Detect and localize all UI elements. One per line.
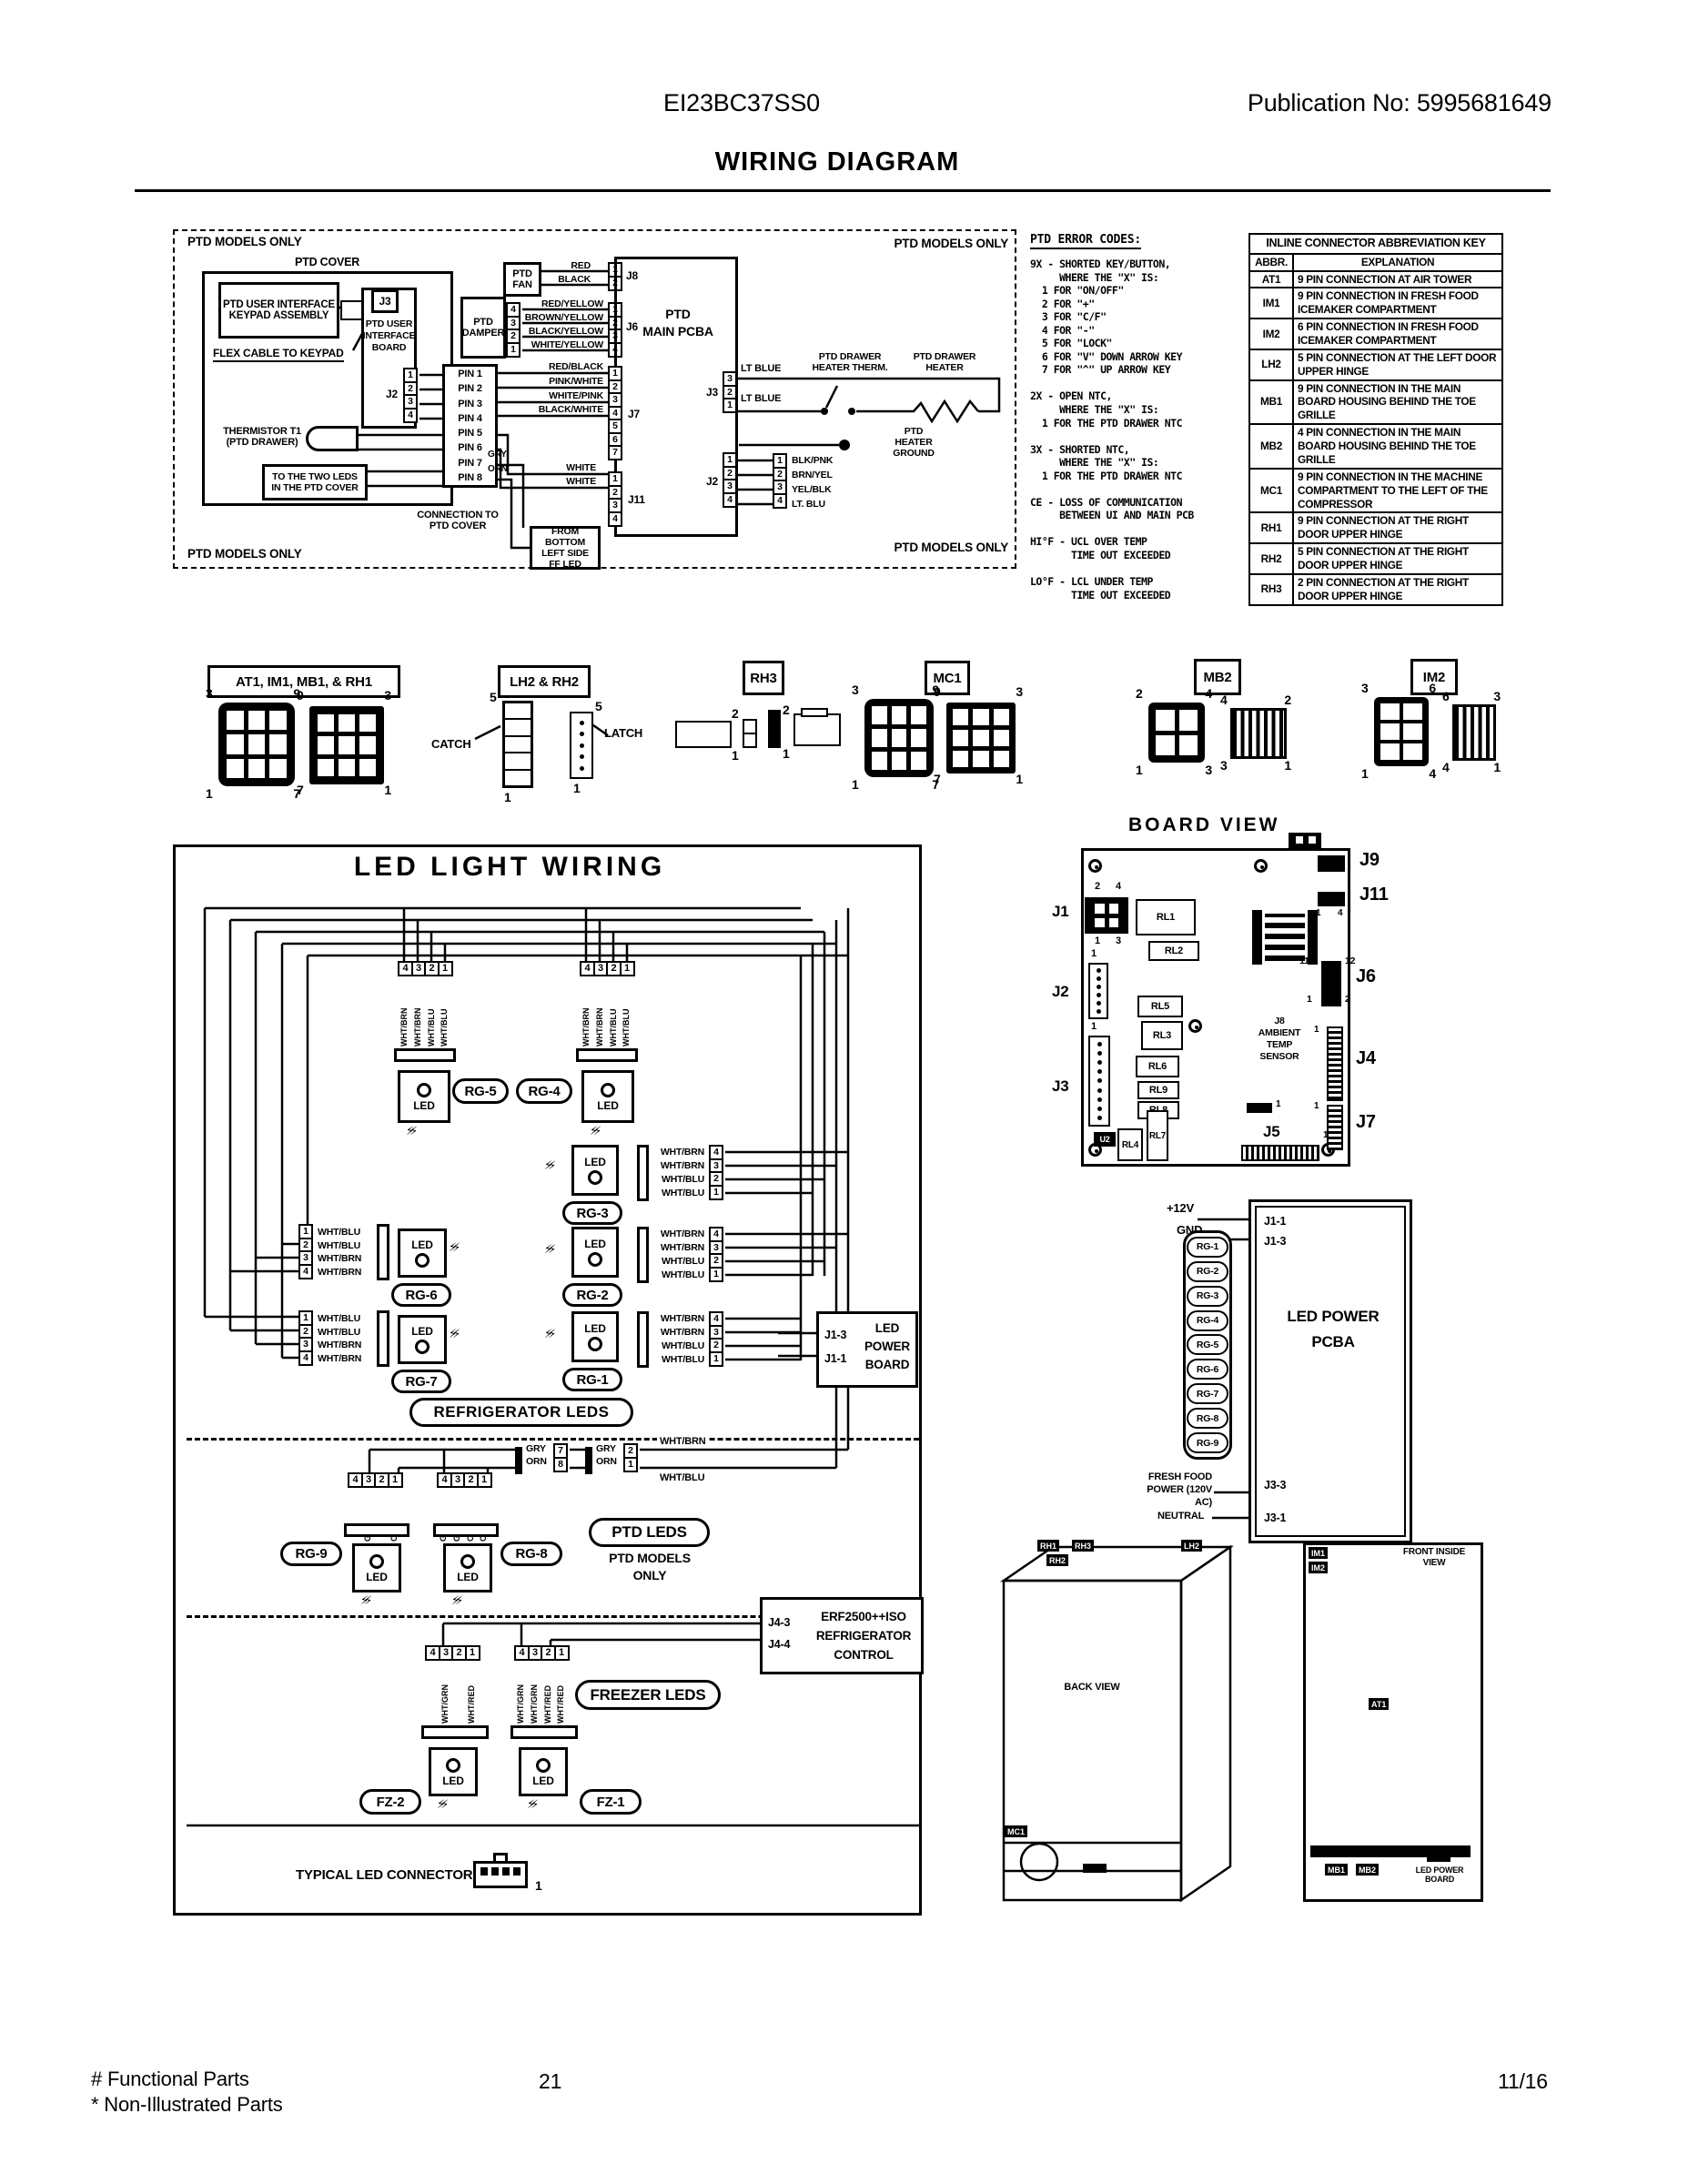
explanation-cell: 2 PIN CONNECTION AT THE RIGHT DOOR UPPER… xyxy=(1294,575,1501,604)
heater-ground-label: PTD HEATER GROUND xyxy=(890,426,937,459)
ptd-fan-box: PTD FAN xyxy=(503,262,541,297)
j2-right-pins: 1234 xyxy=(723,452,737,508)
explanation-cell: 4 PIN CONNECTION IN THE MAIN BOARD HOUSI… xyxy=(1294,425,1501,468)
rg3-led: LED xyxy=(571,1145,619,1196)
pin-cell: 4 xyxy=(723,492,737,508)
rg5-pins: 4321 xyxy=(398,961,453,976)
mount-hole-icon xyxy=(1188,1019,1202,1033)
error-codes-title: PTD ERROR CODES: xyxy=(1030,233,1141,249)
col-abbr: ABBR. xyxy=(1250,255,1294,270)
pin-row: PIN 2 xyxy=(445,381,495,396)
group5-label: MB2 xyxy=(1194,659,1241,695)
j7-pins: 1234567 xyxy=(608,366,622,460)
damper-wire: RED/YELLOW xyxy=(523,298,603,309)
abbr-cell: LH2 xyxy=(1250,350,1294,379)
rg3-label: RG-3 xyxy=(562,1201,622,1225)
pin-cell: 7 xyxy=(608,445,622,460)
fan-wire-black: BLACK xyxy=(551,274,591,285)
rg-channel: RG-9 xyxy=(1187,1432,1228,1453)
rg-channel: RG-1 xyxy=(1187,1237,1228,1258)
ptd-models-only-bl: PTD MODELS ONLY xyxy=(187,547,302,561)
led-icon xyxy=(601,1083,615,1097)
rg5-label: RG-5 xyxy=(452,1078,509,1104)
catch-label: CATCH xyxy=(431,737,471,751)
publication-number: Publication No: 5995681649 xyxy=(1124,89,1552,117)
damper-wire: BLACK/YELLOW xyxy=(523,326,603,337)
rh3-2pin-b xyxy=(768,710,781,748)
fz1-label: FZ-1 xyxy=(580,1789,642,1815)
ptd-models-only-br: PTD MODELS ONLY xyxy=(864,541,1008,554)
rg4-wires: WHT/BRNWHT/BRNWHT/BLUWHT/BLU xyxy=(580,981,633,1046)
j3-3: J3-3 xyxy=(1264,1479,1286,1491)
table-row: RH1 9 PIN CONNECTION AT THE RIGHT DOOR U… xyxy=(1250,513,1501,544)
damper-wire: WHITE/YELLOW xyxy=(523,339,603,350)
inline-bracket-icon xyxy=(585,1447,592,1474)
j1-board-connector xyxy=(1085,897,1128,934)
neutral-label: NEUTRAL xyxy=(1157,1511,1204,1522)
j1-1-label: J1-1 xyxy=(824,1352,846,1365)
table-row: RH2 5 PIN CONNECTION AT THE RIGHT DOOR U… xyxy=(1250,544,1501,575)
ptd-main-pcba-label: PTD MAIN PCBA xyxy=(628,306,728,340)
rg7-led: LED xyxy=(398,1315,447,1364)
latch-label: LATCH xyxy=(604,726,642,740)
j2-board-connector xyxy=(1088,963,1108,1019)
thermistor-bulb xyxy=(306,426,359,451)
wht-blu-label: WHT/BLU xyxy=(657,1472,707,1483)
j9-label: J9 xyxy=(1359,850,1380,871)
rg2-label: RG-2 xyxy=(562,1283,622,1307)
pin-row: PIN 4 xyxy=(445,411,495,426)
lt-blue-1: LT BLUE xyxy=(741,363,781,374)
j3-board-connector xyxy=(1088,1036,1110,1127)
led-icon xyxy=(417,1083,431,1097)
relay-rl7: RL7 xyxy=(1147,1110,1168,1161)
heater-therm-label: PTD DRAWER HEATER THERM. xyxy=(806,351,894,373)
led-power-board-icon xyxy=(1427,1851,1450,1862)
j5-connector xyxy=(1241,1145,1319,1161)
rg4-led: LED xyxy=(581,1070,634,1123)
im1-chip: IM1 xyxy=(1309,1547,1328,1559)
table-row: IM2 6 PIN CONNECTION IN FRESH FOOD ICEMA… xyxy=(1250,319,1501,350)
fz2-wires: WHT/GRNWHT/RED xyxy=(425,1665,479,1724)
led-icon xyxy=(460,1554,475,1569)
wiring-diagram-page: EI23BC37SS0 Publication No: 5995681649 W… xyxy=(0,0,1688,2184)
ptd-models-only-tr: PTD MODELS ONLY xyxy=(864,237,1008,250)
j3-board-label: J3 xyxy=(1052,1077,1069,1096)
j3-right-pins: 321 xyxy=(723,371,737,413)
wht-brn-label: WHT/BRN xyxy=(657,1436,709,1447)
j1-3: J1-3 xyxy=(1264,1235,1286,1248)
non-illustrated-note: * Non-Illustrated Parts xyxy=(91,2093,283,2117)
led-power-pcba-box: J1-1 J1-3 LED POWER PCBA J3-3 J3-1 xyxy=(1248,1199,1412,1543)
lightning-icon xyxy=(527,1796,534,1813)
rg1-led: LED xyxy=(571,1311,619,1362)
rg7-wires: WHT/BLUWHT/BLUWHT/BRNWHT/BRN xyxy=(318,1312,361,1365)
j2r-wire: BLK/PNK xyxy=(792,455,833,466)
fz2-led: LED xyxy=(429,1747,478,1796)
abbr-cell: RH2 xyxy=(1250,544,1294,573)
led-icon xyxy=(446,1758,460,1773)
refrigerator-control-box: J4-3 J4-4 ERF2500++ISO REFRIGERATOR CONT… xyxy=(760,1597,924,1674)
fz1-wires: WHT/GRNWHT/GRNWHT/REDWHT/RED xyxy=(514,1665,568,1724)
relay-rl1: RL1 xyxy=(1136,899,1196,935)
j4-label: J4 xyxy=(1356,1048,1376,1069)
j4-connector xyxy=(1327,1026,1343,1101)
j7-connector xyxy=(1327,1105,1343,1150)
transformer-icon xyxy=(1252,910,1262,965)
led-power-board-label: LED POWER BOARD xyxy=(857,1319,917,1374)
j2-board-label: J2 xyxy=(1052,983,1069,1001)
ff-led-box: FROM BOTTOM LEFT SIDE FF LED xyxy=(530,526,601,570)
rg-channel: RG-3 xyxy=(1187,1286,1228,1307)
j2-left-label: J2 xyxy=(386,388,398,400)
explanation-cell: 5 PIN CONNECTION AT THE RIGHT DOOR UPPER… xyxy=(1294,544,1501,573)
abbr-cell: MB2 xyxy=(1250,425,1294,468)
j11-connector xyxy=(1318,892,1345,906)
abbr-cell: MC1 xyxy=(1250,470,1294,512)
lightning-icon xyxy=(544,1158,551,1174)
rg8-led: LED xyxy=(443,1543,492,1592)
inline2-pins: 21 xyxy=(623,1443,638,1472)
at1-chip: AT1 xyxy=(1369,1698,1389,1710)
damper-wire: BROWN/YELLOW xyxy=(523,312,603,323)
inline-bracket-icon xyxy=(515,1447,522,1474)
board-top-connector xyxy=(1289,833,1321,850)
j6-connector xyxy=(1321,961,1341,1006)
lightning-icon xyxy=(437,1796,444,1813)
abbr-cell: AT1 xyxy=(1250,272,1294,288)
gry-label: GRY xyxy=(488,450,507,460)
fz2-label: FZ-2 xyxy=(359,1789,421,1815)
fan-wire-red: RED xyxy=(551,260,591,271)
rg6-pins: 1234 xyxy=(298,1224,313,1279)
rg6-led: LED xyxy=(398,1228,447,1278)
pin-row: PIN 1 xyxy=(445,367,495,381)
j1-1: J1-1 xyxy=(1264,1215,1286,1228)
j7-wire: PINK/WHITE xyxy=(523,376,603,387)
rh3-latch-glyph xyxy=(793,713,841,746)
j2r-wire: LT. BLU xyxy=(792,499,825,510)
rg4-label: RG-4 xyxy=(516,1078,572,1104)
led-icon xyxy=(415,1253,430,1268)
rg8-label: RG-8 xyxy=(500,1542,562,1566)
white-wire-2: WHITE xyxy=(551,476,596,487)
rg3-wires: WHT/BRNWHT/BRNWHT/BLUWHT/BLU xyxy=(650,1146,704,1200)
connector-mc1-female: 3 9 1 7 xyxy=(864,699,934,777)
thermistor-label: THERMISTOR T1 (PTD DRAWER) xyxy=(217,426,308,448)
fz2-pins: 4321 xyxy=(425,1645,480,1661)
lightning-icon xyxy=(406,1123,413,1139)
rg-channel: RG-4 xyxy=(1187,1310,1228,1331)
refrigerator-control-label: ERF2500++ISO REFRIGERATOR CONTROL xyxy=(806,1607,921,1664)
j3-right-label: J3 xyxy=(706,386,718,399)
connector-at1-male: 9 3 7 1 xyxy=(309,706,384,784)
connector-lh2-female xyxy=(502,701,533,788)
rh1-chip: RH1 xyxy=(1037,1540,1059,1552)
header-rule xyxy=(135,189,1551,192)
pin-cell: 4 xyxy=(608,511,622,527)
mount-hole-icon xyxy=(1254,859,1268,873)
typical-connector-pin: 1 xyxy=(535,1878,542,1893)
led-icon xyxy=(588,1252,602,1267)
rg5-led: LED xyxy=(398,1070,450,1123)
rh2-chip: RH2 xyxy=(1046,1554,1068,1566)
j3-1: J3-1 xyxy=(1264,1512,1286,1524)
j2r-wire: YEL/BLK xyxy=(792,484,832,495)
rg6-wires: WHT/BLUWHT/BLUWHT/BRNWHT/BRN xyxy=(318,1226,361,1279)
rg4-pins: 4321 xyxy=(580,961,635,976)
connector-mc1-male: 9 3 7 1 xyxy=(946,703,1016,773)
explanation-cell: 6 PIN CONNECTION IN FRESH FOOD ICEMAKER … xyxy=(1294,319,1501,349)
rh3-chip: RH3 xyxy=(1072,1540,1094,1552)
lightning-icon xyxy=(449,1326,456,1342)
rg6-label: RG-6 xyxy=(391,1283,451,1307)
fz1-pins: 4321 xyxy=(514,1645,570,1661)
keypad-assembly: PTD USER INTERFACE KEYPAD ASSEMBLY xyxy=(218,282,339,339)
table-row: MB1 9 PIN CONNECTION IN THE MAIN BOARD H… xyxy=(1250,381,1501,426)
relay-rl2: RL2 xyxy=(1148,941,1199,961)
j2r-wire: BRN/YEL xyxy=(792,470,833,480)
connector-im2-male: 6 3 4 1 xyxy=(1452,704,1496,761)
connector-im2-female: 3 6 1 4 xyxy=(1374,697,1429,766)
col-expl: EXPLANATION xyxy=(1294,255,1501,270)
j11-pins: 1234 xyxy=(608,471,622,527)
inline1-pins: 78 xyxy=(553,1443,568,1472)
heater-label: PTD DRAWER HEATER xyxy=(908,351,981,373)
explanation-cell: 9 PIN CONNECTION AT THE RIGHT DOOR UPPER… xyxy=(1294,513,1501,542)
led-icon xyxy=(588,1170,602,1185)
rh3-2pin-a xyxy=(743,719,757,748)
j5-label: J5 xyxy=(1263,1123,1280,1141)
white-wire-1: WHITE xyxy=(551,462,596,473)
mount-hole-icon xyxy=(1088,859,1102,873)
lightning-icon xyxy=(544,1241,551,1258)
j7-wire: BLACK/WHITE xyxy=(523,404,603,415)
typical-led-connector-icon xyxy=(473,1853,530,1895)
j7-label: J7 xyxy=(1356,1112,1376,1133)
j11-label: J11 xyxy=(1359,885,1389,905)
led-power-board-box: J1-3 J1-1 LED POWER BOARD xyxy=(816,1311,918,1388)
table-row: LH2 5 PIN CONNECTION AT THE LEFT DOOR UP… xyxy=(1250,350,1501,381)
functional-parts-note: # Functional Parts xyxy=(91,2068,249,2091)
ui-board-label: PTD USER INTERFACE BOARD xyxy=(362,318,416,354)
explanation-cell: 9 PIN CONNECTION AT AIR TOWER xyxy=(1294,272,1501,288)
table-row: AT1 9 PIN CONNECTION AT AIR TOWER xyxy=(1250,272,1501,289)
group2-label: LH2 & RH2 xyxy=(498,665,591,698)
rg-channel: RG-2 xyxy=(1187,1261,1228,1282)
back-view-title: BACK VIEW xyxy=(1045,1682,1139,1693)
typical-led-connector-label: TYPICAL LED CONNECTOR xyxy=(296,1867,472,1883)
connection-cover-label: CONNECTION TO PTD COVER xyxy=(414,510,501,531)
page-title: WIRING DIAGRAM xyxy=(628,147,1046,177)
rg-channel-column: RG-1RG-2RG-3RG-4RG-5RG-6RG-7RG-8RG-9 xyxy=(1183,1230,1232,1460)
led-icon xyxy=(588,1337,602,1351)
j2-left-pins: 1234 xyxy=(403,368,418,423)
date-code: 11/16 xyxy=(1498,2069,1548,2094)
refrigerator-leds-label: REFRIGERATOR LEDS xyxy=(409,1398,633,1427)
explanation-cell: 5 PIN CONNECTION AT THE LEFT DOOR UPPER … xyxy=(1294,350,1501,379)
abbr-cell: RH1 xyxy=(1250,513,1294,542)
im2-chip: IM2 xyxy=(1309,1562,1328,1573)
mb2-chip: MB2 xyxy=(1356,1864,1379,1876)
lightning-icon xyxy=(544,1326,551,1342)
rg1-label: RG-1 xyxy=(562,1368,622,1391)
rg9-label: RG-9 xyxy=(280,1542,342,1566)
lightning-icon xyxy=(449,1239,456,1256)
j7-wire: WHITE/PINK xyxy=(523,390,603,401)
ptd-leds-label: PTD LEDS xyxy=(589,1518,710,1547)
ptd-models-only-label: PTD MODELS ONLY xyxy=(593,1550,706,1584)
table-row: IM1 9 PIN CONNECTION IN FRESH FOOD ICEMA… xyxy=(1250,288,1501,319)
rg2-pins: 4321 xyxy=(709,1227,723,1282)
explanation-cell: 9 PIN CONNECTION IN THE MAIN BOARD HOUSI… xyxy=(1294,381,1501,424)
rg7-pins: 1234 xyxy=(298,1310,313,1366)
flex-cable-label: FLEX CABLE TO KEYPAD xyxy=(213,347,344,362)
led-power-board-caption: LED POWER BOARD xyxy=(1407,1865,1472,1884)
rg-channel: RG-5 xyxy=(1187,1334,1228,1355)
group3-label: RH3 xyxy=(743,661,784,695)
lightning-icon xyxy=(360,1592,368,1609)
relay-rl9: RL9 xyxy=(1137,1081,1179,1099)
j4-4-label: J4-4 xyxy=(768,1638,790,1651)
relay-rl6: RL6 xyxy=(1136,1056,1179,1077)
abbr-cell: IM1 xyxy=(1250,288,1294,318)
freezer-leds-label: FREEZER LEDS xyxy=(575,1680,721,1710)
j9-connector xyxy=(1318,855,1345,872)
pin-cell: 4 xyxy=(403,408,418,423)
pin-cell: 1 xyxy=(723,398,737,413)
led-icon xyxy=(369,1554,384,1569)
rg9-pins: 4321 xyxy=(348,1472,403,1488)
mc1-chip: MC1 xyxy=(1005,1825,1027,1837)
led-wiring-title: LED LIGHT WIRING xyxy=(218,852,801,883)
rg9-led: LED xyxy=(352,1543,401,1592)
explanation-cell: 9 PIN CONNECTION IN THE MACHINE COMPARTM… xyxy=(1294,470,1501,512)
relay-rl5: RL5 xyxy=(1137,996,1183,1017)
mb1-chip: MB1 xyxy=(1325,1864,1348,1876)
rg1-wires: WHT/BRNWHT/BRNWHT/BLUWHT/BLU xyxy=(650,1312,704,1367)
j7-label: J7 xyxy=(628,408,640,420)
pin-cell: 1 xyxy=(506,342,521,358)
damper-pins: 4321 xyxy=(506,302,521,358)
relay-rl4: RL4 xyxy=(1117,1128,1143,1161)
abbr-cell: MB1 xyxy=(1250,381,1294,424)
led-icon xyxy=(415,1340,430,1354)
model-number: EI23BC37SS0 xyxy=(582,89,901,117)
rg2-led: LED xyxy=(571,1227,619,1278)
connector-lh2-male xyxy=(570,712,593,779)
rg-channel: RG-7 xyxy=(1187,1383,1228,1404)
table-row: MB2 4 PIN CONNECTION IN THE MAIN BOARD H… xyxy=(1250,425,1501,470)
rg-channel: RG-8 xyxy=(1187,1408,1228,1429)
j8-sensor-label: J8 AMBIENT TEMP SENSOR xyxy=(1250,1016,1309,1063)
ptd-damper-box: PTD DAMPER xyxy=(460,297,506,359)
ptd-cover-label: PTD COVER xyxy=(291,256,363,268)
board-view-title: BOARD VIEW xyxy=(1128,814,1280,836)
section-divider xyxy=(187,1438,919,1441)
u2-chip: U2 xyxy=(1094,1132,1116,1147)
plus12v-label: +12V xyxy=(1167,1201,1194,1215)
j11-label: J11 xyxy=(628,493,645,506)
j1-3-label: J1-3 xyxy=(824,1329,846,1341)
connector-at1-female: 3 9 1 7 xyxy=(218,703,295,786)
j2-right-label: J2 xyxy=(706,475,718,488)
explanation-cell: 9 PIN CONNECTION IN FRESH FOOD ICEMAKER … xyxy=(1294,288,1501,318)
orn-label: ORN xyxy=(488,464,508,474)
table-row: RH3 2 PIN CONNECTION AT THE RIGHT DOOR U… xyxy=(1250,575,1501,604)
rg8-pins: 4321 xyxy=(437,1472,492,1488)
j6-label: J6 xyxy=(1356,966,1376,987)
led-icon xyxy=(536,1758,551,1773)
table-header: ABBR. EXPLANATION xyxy=(1250,255,1501,272)
lt-blue-2: LT BLUE xyxy=(741,393,781,404)
j1-board-label: J1 xyxy=(1052,903,1069,921)
page-number: 21 xyxy=(539,2069,561,2094)
abbr-cell: RH3 xyxy=(1250,575,1294,604)
lightning-icon xyxy=(590,1123,597,1139)
board-outline xyxy=(1081,848,1350,1167)
rh3-housing xyxy=(675,721,732,748)
table-row: MC1 9 PIN CONNECTION IN THE MACHINE COMP… xyxy=(1250,470,1501,514)
lh2-chip: LH2 xyxy=(1181,1540,1202,1552)
ptd-models-only-tl: PTD MODELS ONLY xyxy=(187,235,302,248)
pin-cell: 4 xyxy=(773,493,787,509)
j3-connector: J3 xyxy=(371,289,399,313)
aux-connector xyxy=(1247,1103,1272,1113)
pcba-label: LED POWER PCBA xyxy=(1269,1304,1397,1355)
relay-rl3: RL3 xyxy=(1141,1021,1183,1050)
j4-3-label: J4-3 xyxy=(768,1616,790,1629)
front-view-title: FRONT INSIDE VIEW xyxy=(1390,1547,1478,1569)
abbr-cell: IM2 xyxy=(1250,319,1294,349)
rg1-pins: 4321 xyxy=(709,1311,723,1367)
rg3-pins: 4321 xyxy=(709,1145,723,1200)
j7-wire: RED/BLACK xyxy=(523,361,603,372)
group1-label: AT1, IM1, MB1, & RH1 xyxy=(207,665,400,698)
fz1-led: LED xyxy=(519,1747,568,1796)
connector-mb2-male: 4 2 3 1 xyxy=(1230,708,1287,759)
rg7-label: RG-7 xyxy=(391,1370,451,1393)
rg-channel: RG-6 xyxy=(1187,1359,1228,1380)
abbreviation-key-table: INLINE CONNECTOR ABBREVIATION KEY ABBR. … xyxy=(1248,233,1503,606)
rg2-wires: WHT/BRNWHT/BRNWHT/BLUWHT/BLU xyxy=(650,1228,704,1282)
lightning-icon xyxy=(451,1592,459,1609)
fresh-food-label: FRESH FOOD POWER (120V AC) xyxy=(1128,1471,1212,1509)
two-leds-box: TO THE TWO LEDS IN THE PTD COVER xyxy=(262,464,368,500)
error-codes-body: 9X - SHORTED KEY/BUTTON, WHERE THE "X" I… xyxy=(1030,258,1194,602)
pin-row: PIN 3 xyxy=(445,397,495,411)
pin-row: PIN 5 xyxy=(445,426,495,440)
j2-right-inline-pins: 1234 xyxy=(773,453,787,509)
connector-mb2-female: 2 4 1 3 xyxy=(1148,703,1205,763)
rg5-wires: WHT/BRNWHT/BRNWHT/BLUWHT/BLU xyxy=(398,981,451,1046)
table-title: INLINE CONNECTOR ABBREVIATION KEY xyxy=(1250,235,1501,255)
